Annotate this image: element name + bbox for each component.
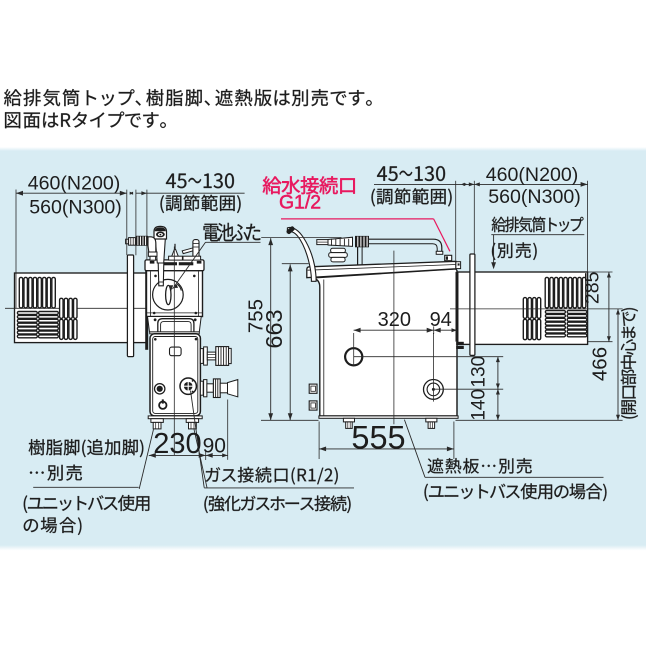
svg-text:320: 320 [378, 309, 411, 331]
svg-text:560(N300): 560(N300) [488, 186, 581, 208]
svg-text:130: 130 [468, 356, 489, 388]
svg-text:G1/2: G1/2 [279, 192, 321, 214]
svg-text:140: 140 [468, 389, 489, 421]
svg-text:90: 90 [203, 435, 226, 458]
svg-text:230: 230 [153, 428, 201, 460]
svg-text:460(N200): 460(N200) [486, 164, 579, 186]
svg-text:460(N200): 460(N200) [28, 172, 121, 194]
svg-text:285: 285 [582, 271, 604, 304]
svg-text:94: 94 [430, 309, 452, 331]
svg-text:555: 555 [351, 419, 405, 455]
svg-text:466: 466 [589, 347, 612, 381]
svg-text:663: 663 [261, 309, 287, 348]
svg-text:560(N300): 560(N300) [29, 196, 122, 218]
